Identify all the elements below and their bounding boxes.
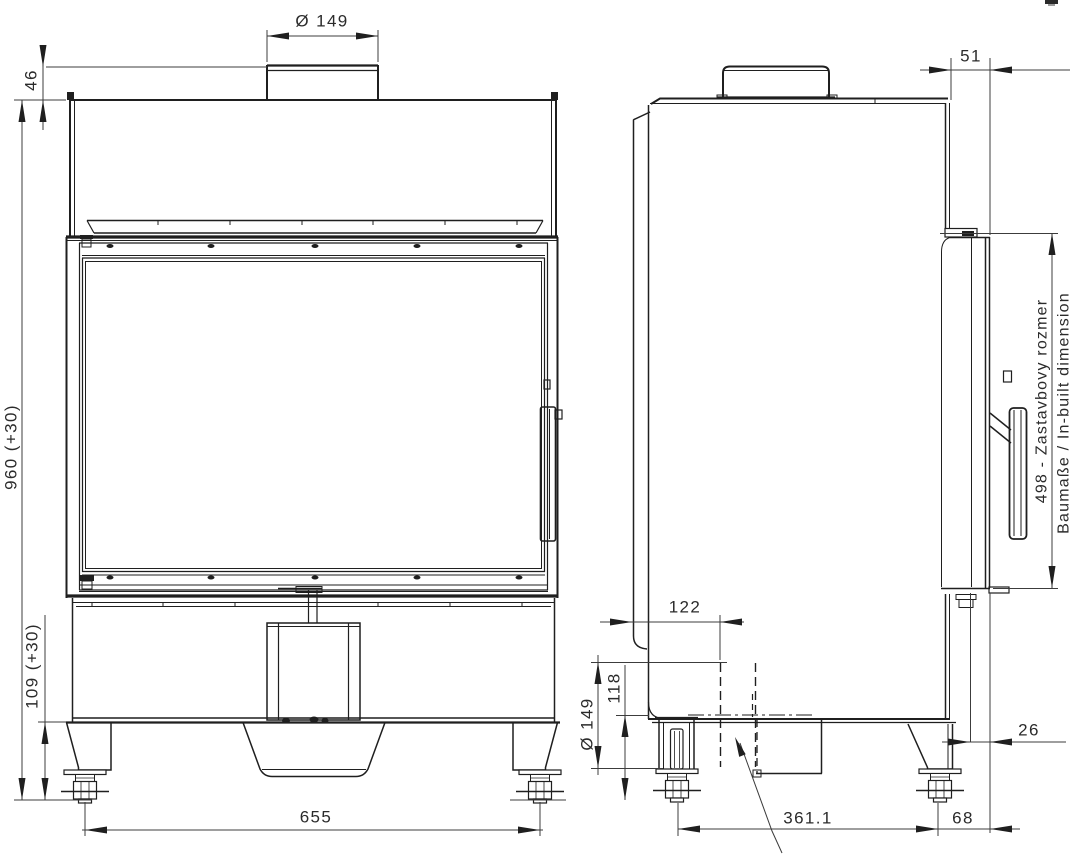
dim-plinth-height-label: 109 (+30) (23, 623, 42, 709)
dim-rear-flue-diameter-label: Ø 149 (578, 697, 597, 750)
dim-inbuilt-height-translation-label: Baumaße / In-built dimension (1056, 292, 1073, 534)
dim-foot-spacing-label: 361.1 (783, 809, 833, 828)
dim-outlet-clearance-label: 118 (605, 672, 624, 703)
dim-overall-height-label: 960 (+30) (2, 404, 21, 490)
dim-front-flue-diameter-label: Ø 149 (295, 12, 348, 31)
technical-drawing-sheet: Ø 149 46 960 (+30) 109 (+30) 655 51 498 … (0, 0, 1074, 854)
corner-pin-right (551, 92, 558, 100)
dim-inbuilt-height-sk-label: 498 - Zastavbovy rozmer (1034, 299, 1051, 504)
dim-rear-outlet-offset-label: 122 (669, 598, 702, 617)
fireplace-dimension-drawing: Ø 149 46 960 (+30) 109 (+30) 655 51 498 … (0, 0, 1074, 854)
corner-pin-left (67, 92, 74, 100)
dim-rear-foot-to-back-label: 68 (952, 809, 974, 828)
dim-frame-projection-label: 51 (960, 47, 982, 66)
paper-background (0, 0, 1074, 854)
dim-collar-height-label: 46 (22, 69, 41, 91)
dim-overall-width-label: 655 (300, 808, 333, 827)
dim-glass-recess-label: 26 (1018, 721, 1040, 740)
